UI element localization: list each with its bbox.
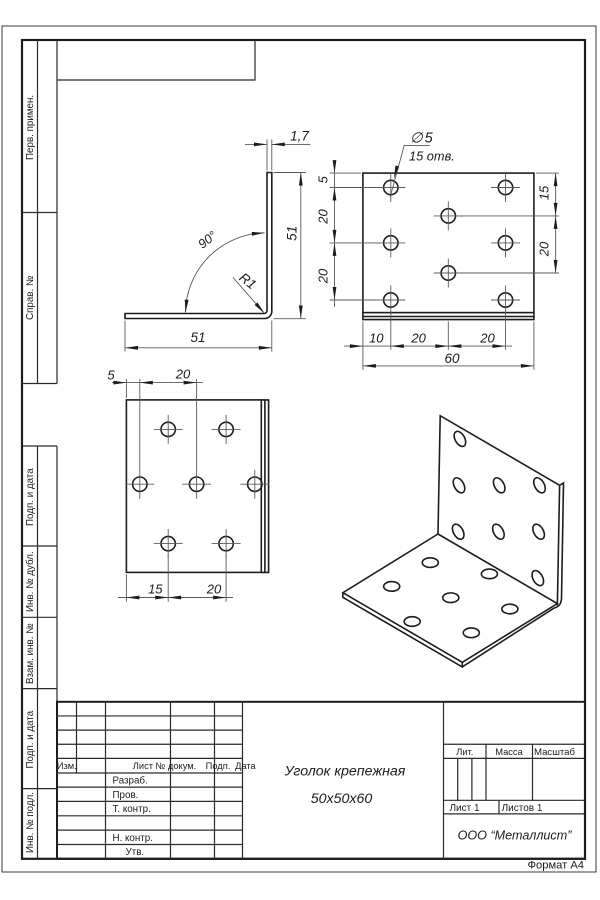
svg-text:Уголок крепежная: Уголок крепежная — [284, 764, 406, 780]
svg-text:Масштаб: Масштаб — [534, 747, 576, 758]
svg-text:Масса: Масса — [495, 747, 523, 757]
svg-text:20: 20 — [175, 366, 191, 381]
svg-text:Изм.: Изм. — [57, 761, 77, 771]
svg-text:Утв.: Утв. — [126, 847, 145, 858]
svg-text:Н. контр.: Н. контр. — [113, 833, 153, 844]
svg-text:15: 15 — [148, 582, 163, 597]
svg-text:20: 20 — [537, 241, 552, 257]
svg-text:5: 5 — [107, 367, 115, 382]
svg-text:1,7: 1,7 — [290, 129, 309, 144]
svg-text:ООО “Металлист”: ООО “Металлист” — [458, 829, 573, 843]
svg-text:10: 10 — [369, 331, 384, 346]
svg-text:Инв. № дубл.: Инв. № дубл. — [25, 551, 36, 612]
svg-text:15 отв.: 15 отв. — [409, 149, 455, 164]
svg-text:Подп. и дата: Подп. и дата — [25, 710, 36, 768]
svg-text:Взам. инв. №: Взам. инв. № — [25, 623, 36, 684]
svg-text:R1: R1 — [236, 270, 259, 292]
svg-text:Инв. № подл.: Инв. № подл. — [25, 792, 36, 853]
svg-text:5: 5 — [316, 175, 331, 183]
svg-text:Лист: Лист — [133, 761, 154, 771]
svg-text:∅5: ∅5 — [410, 131, 435, 147]
svg-text:Лист 1: Лист 1 — [449, 803, 480, 814]
svg-text:Т. контр.: Т. контр. — [113, 804, 151, 815]
svg-text:15: 15 — [537, 185, 552, 200]
svg-text:Подп. и дата: Подп. и дата — [25, 468, 36, 526]
svg-text:20: 20 — [410, 331, 426, 346]
svg-text:Пров.: Пров. — [113, 790, 139, 801]
svg-text:Формат А4: Формат А4 — [528, 860, 585, 872]
svg-text:20: 20 — [479, 331, 495, 346]
svg-text:Дата: Дата — [235, 761, 256, 771]
svg-text:Подп.: Подп. — [206, 761, 231, 771]
svg-text:Перв. примен.: Перв. примен. — [25, 95, 36, 160]
svg-text:51: 51 — [190, 330, 205, 345]
svg-text:60: 60 — [444, 351, 460, 366]
svg-text:Разраб.: Разраб. — [113, 776, 148, 787]
svg-text:20: 20 — [206, 582, 222, 597]
svg-text:20: 20 — [316, 209, 331, 225]
svg-text:Листов 1: Листов 1 — [502, 803, 543, 814]
svg-text:90°: 90° — [195, 228, 219, 252]
svg-text:№ докум.: № докум. — [155, 761, 196, 771]
svg-text:20: 20 — [316, 268, 331, 284]
svg-text:50х50х60: 50х50х60 — [311, 791, 373, 807]
svg-text:Лит.: Лит. — [456, 747, 473, 757]
svg-text:51: 51 — [285, 226, 300, 241]
svg-text:Справ. №: Справ. № — [25, 276, 36, 320]
